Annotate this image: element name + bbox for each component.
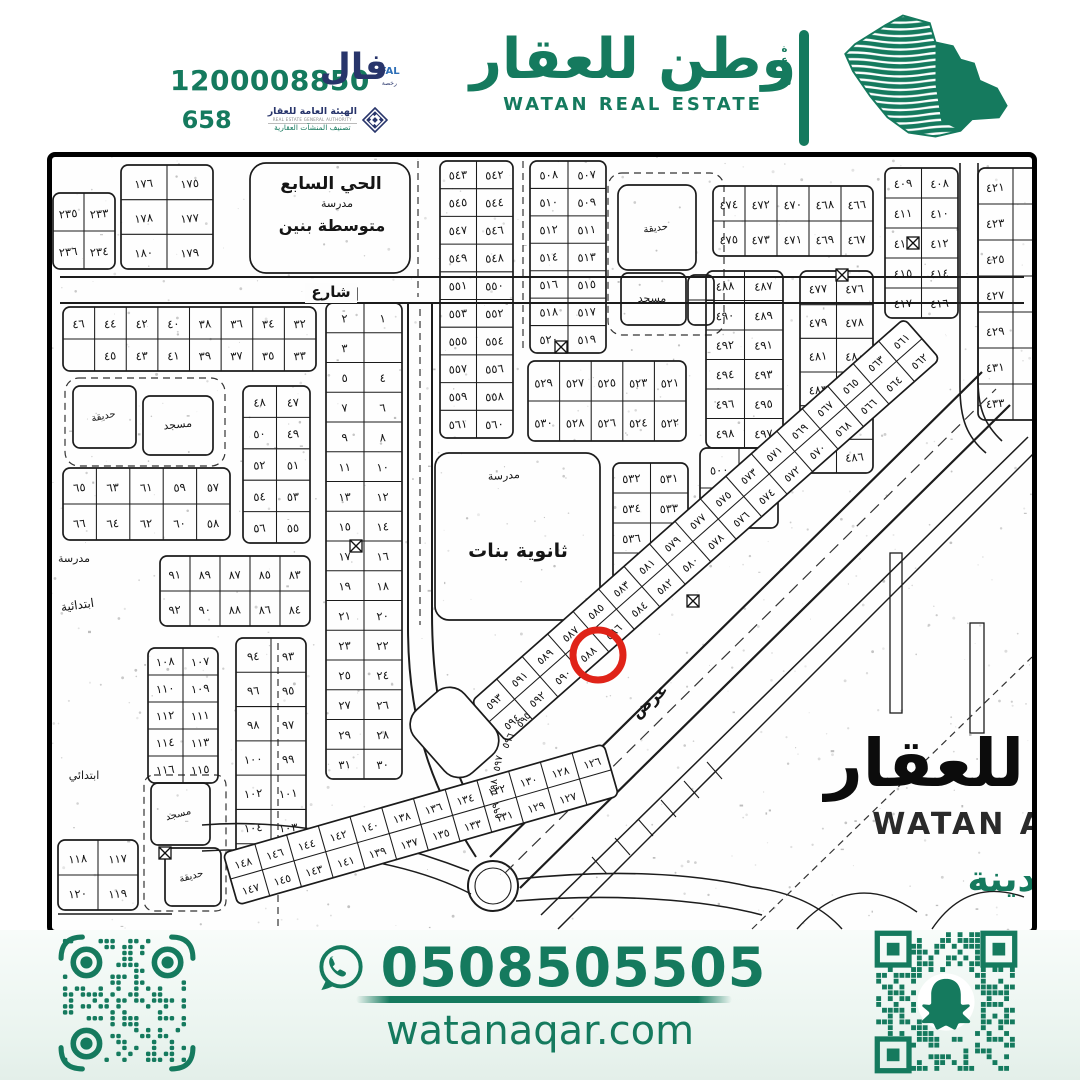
- svg-text:٤٧٦: ٤٧٦: [845, 281, 865, 297]
- svg-text:٥٣: ٥٣: [286, 489, 300, 504]
- svg-text:حديقة: حديقة: [178, 868, 205, 885]
- svg-text:٥٢٨: ٥٢٨: [565, 415, 585, 431]
- svg-text:٤٦٩: ٤٦٩: [815, 232, 835, 248]
- brand-name-arabic: وطن للعقار: [468, 22, 798, 98]
- svg-text:٥٢١: ٥٢١: [660, 375, 680, 391]
- svg-text:٩٨: ٩٨: [246, 717, 260, 732]
- svg-text:٥٠٨: ٥٠٨: [539, 167, 559, 183]
- brand-side-text: شمعة: [779, 44, 790, 144]
- svg-text:٤١٠: ٤١٠: [930, 206, 950, 222]
- svg-text:٩٣: ٩٣: [281, 649, 295, 664]
- svg-text:١٠١: ١٠١: [278, 786, 298, 802]
- svg-text:٤٨٩: ٤٨٩: [754, 308, 774, 324]
- svg-text:٨٥: ٨٥: [258, 567, 272, 582]
- svg-text:الحي السابع: الحي السابع: [280, 174, 381, 194]
- svg-text:متوسطة بنين: متوسطة بنين: [279, 216, 386, 235]
- svg-text:٣٠: ٣٠: [376, 757, 390, 772]
- svg-text:٥٠٩: ٥٠٩: [577, 194, 597, 210]
- svg-text:٥٠٧: ٥٠٧: [577, 167, 597, 183]
- svg-text:٤٣٣: ٤٣٣: [985, 396, 1005, 412]
- secondary-license-number: 658: [182, 106, 232, 134]
- svg-text:٥٩: ٥٩: [173, 480, 187, 495]
- svg-text:٨٣: ٨٣: [288, 567, 302, 582]
- svg-text:٣١: ٣١: [338, 757, 352, 772]
- svg-text:٥٠: ٥٠: [253, 426, 267, 441]
- svg-text:٥٥٦: ٥٥٦: [485, 361, 505, 377]
- svg-text:٤٧١: ٤٧١: [783, 232, 803, 248]
- saudi-map-icon: [826, 4, 1022, 148]
- svg-text:٤٩٥: ٤٩٥: [754, 396, 774, 412]
- svg-text:٥١٢: ٥١٢: [539, 222, 559, 238]
- svg-text:٤٩٦: ٤٩٦: [715, 396, 735, 412]
- svg-text:٥١٧: ٥١٧: [577, 304, 597, 320]
- svg-text:ابتدائي: ابتدائي: [69, 769, 100, 782]
- svg-text:٤٦: ٤٦: [72, 316, 86, 331]
- svg-text:٣: ٣: [341, 341, 348, 355]
- svg-text:٥٢٩: ٥٢٩: [534, 375, 554, 391]
- svg-text:٥٢٣: ٥٢٣: [628, 375, 648, 391]
- svg-text:٢٣٣: ٢٣٣: [89, 206, 109, 222]
- svg-text:٥٤٨: ٥٤٨: [485, 250, 505, 266]
- svg-text:٥١٠: ٥١٠: [539, 194, 559, 210]
- svg-text:١٥: ١٥: [338, 519, 352, 534]
- svg-text:٤٩: ٤٩: [286, 426, 300, 441]
- svg-text:١١١: ١١١: [190, 708, 210, 724]
- svg-text:٣٦: ٣٦: [230, 316, 244, 331]
- svg-text:٥١٥: ٥١٥: [577, 277, 597, 293]
- svg-text:٥٥٢: ٥٥٢: [485, 306, 505, 322]
- svg-text:٤٩٠: ٤٩٠: [715, 308, 735, 324]
- svg-text:٢: ٢: [341, 311, 348, 325]
- svg-text:٩٩: ٩٩: [281, 752, 295, 767]
- qr-code-snapchat: [872, 928, 1020, 1076]
- svg-text:٦٦: ٦٦: [73, 516, 87, 531]
- fal-logo-sub: رخصة: [382, 80, 397, 87]
- svg-text:٤٨١: ٤٨١: [808, 348, 828, 364]
- svg-text:٥٢٤: ٥٢٤: [628, 415, 648, 431]
- rega-diamond-icon: [362, 107, 388, 133]
- map-watermark-english: WATAN A: [872, 807, 1037, 842]
- svg-text:٤٣١: ٤٣١: [985, 360, 1005, 376]
- svg-text:٥: ٥: [341, 371, 348, 385]
- svg-text:٥٢٥: ٥٢٥: [597, 375, 617, 391]
- svg-text:٢٧: ٢٧: [338, 698, 352, 713]
- diagonal-plot-strips: ٥٩٣٥٩١٥٨٩٥٨٧٥٨٥٥٨٣٥٨١٥٧٩٥٧٧٥٧٥٥٧٣٥٧١٥٦٩٥…: [223, 319, 940, 905]
- map-watermark-city: دينة: [967, 859, 1036, 900]
- svg-text:٢٢: ٢٢: [376, 638, 390, 653]
- svg-text:١٠٠: ١٠٠: [243, 751, 263, 767]
- svg-text:٢١: ٢١: [338, 608, 352, 623]
- svg-text:٥٤٤: ٥٤٤: [485, 195, 505, 211]
- svg-text:٥٣٤: ٥٣٤: [622, 501, 642, 517]
- svg-text:٥٣٦: ٥٣٦: [622, 531, 642, 547]
- svg-text:١٩: ١٩: [338, 579, 352, 594]
- svg-text:١٠٩: ١٠٩: [190, 681, 210, 697]
- svg-text:٥١٤: ٥١٤: [539, 249, 559, 265]
- svg-text:٨٨: ٨٨: [228, 602, 242, 617]
- svg-text:مدرسة: مدرسة: [321, 197, 353, 210]
- svg-text:٤١٢: ٤١٢: [930, 236, 950, 252]
- svg-text:٤٣: ٤٣: [135, 348, 149, 363]
- svg-text:١١٦: ١١٦: [155, 762, 175, 778]
- svg-text:مدرسة: مدرسة: [58, 552, 90, 565]
- svg-text:٥٥٨: ٥٥٨: [485, 389, 505, 405]
- footer-divider: [356, 996, 732, 1003]
- svg-text:٤٢٥: ٤٢٥: [985, 252, 1005, 268]
- svg-text:مسجد: مسجد: [638, 292, 667, 305]
- svg-text:٥١١: ٥١١: [577, 222, 597, 238]
- svg-text:٤٠: ٤٠: [167, 316, 181, 331]
- svg-text:٤٦٨: ٤٦٨: [815, 197, 835, 213]
- svg-text:١٢٠: ١٢٠: [68, 886, 88, 902]
- svg-text:٥٥١: ٥٥١: [448, 278, 468, 294]
- svg-text:٥٦٠: ٥٦٠: [485, 417, 505, 433]
- svg-text:١١٩: ١١٩: [108, 886, 128, 902]
- flyer-page: 1200008850 FAL فال رخصة 658 الهيئة العام…: [0, 0, 1080, 1080]
- svg-text:٥٨: ٥٨: [206, 516, 220, 531]
- svg-text:٤١١: ٤١١: [893, 206, 913, 222]
- svg-text:حديقة: حديقة: [643, 221, 669, 235]
- svg-text:٢٦: ٢٦: [376, 698, 390, 713]
- svg-text:٣٣: ٣٣: [293, 348, 307, 363]
- svg-text:٥٢: ٥٢: [253, 458, 267, 473]
- svg-text:٨٩: ٨٩: [198, 567, 212, 582]
- svg-text:حديقة: حديقة: [90, 409, 116, 425]
- svg-text:٤٧٤: ٤٧٤: [719, 197, 739, 213]
- brand-name-english: WATAN REAL ESTATE: [468, 94, 798, 115]
- phone-number: 0508505505: [381, 936, 767, 999]
- svg-text:٤٢٩: ٤٢٩: [985, 324, 1005, 340]
- svg-text:١٤: ١٤: [376, 519, 390, 534]
- svg-text:٤٨٦: ٤٨٦: [845, 449, 865, 465]
- svg-text:٥٤٣: ٥٤٣: [448, 167, 468, 183]
- map-watermark-arabic: للعقار: [825, 725, 1024, 802]
- svg-text:٥٥٣: ٥٥٣: [448, 306, 468, 322]
- svg-text:٥٥٤: ٥٥٤: [485, 333, 505, 349]
- svg-text:١١٨: ١١٨: [68, 851, 88, 867]
- svg-text:٥٤٦: ٥٤٦: [485, 223, 505, 239]
- svg-text:ابتدائية: ابتدائية: [60, 596, 95, 615]
- svg-text:٥٩٨: ٥٩٨: [489, 778, 500, 795]
- svg-text:٢٣: ٢٣: [338, 638, 352, 653]
- svg-text:١٦: ١٦: [376, 549, 390, 564]
- svg-text:١١٢: ١١٢: [155, 708, 175, 724]
- svg-text:٤٨٧: ٤٨٧: [754, 278, 774, 294]
- svg-text:٤١٤: ٤١٤: [930, 266, 950, 282]
- svg-text:٤٢١: ٤٢١: [985, 180, 1005, 196]
- svg-text:٤٧٩: ٤٧٩: [808, 315, 828, 331]
- svg-text:٥٣٢: ٥٣٢: [622, 471, 642, 487]
- svg-text:١٨٠: ١٨٠: [134, 245, 154, 261]
- svg-text:٥٣٠: ٥٣٠: [534, 415, 554, 431]
- svg-text:٤٢: ٤٢: [135, 316, 149, 331]
- svg-text:٥٤٥: ٥٤٥: [448, 195, 468, 211]
- svg-text:٤١٥: ٤١٥: [893, 266, 913, 282]
- svg-text:٢٨: ٢٨: [376, 727, 390, 742]
- svg-text:٩٠: ٩٠: [198, 602, 212, 617]
- svg-text:٤٧٠: ٤٧٠: [783, 197, 803, 213]
- svg-text:٤٩٨: ٤٩٨: [715, 426, 735, 442]
- svg-text:٤٩٢: ٤٩٢: [715, 337, 735, 353]
- svg-text:٣٩: ٣٩: [198, 348, 212, 363]
- svg-text:١٧٦: ١٧٦: [134, 176, 154, 192]
- svg-text:٤٩٣: ٤٩٣: [754, 367, 774, 383]
- svg-text:١١٠: ١١٠: [155, 681, 175, 697]
- svg-text:٥٥٠: ٥٥٠: [485, 278, 505, 294]
- svg-text:٥٦: ٥٦: [253, 521, 267, 536]
- svg-text:٥١٨: ٥١٨: [539, 304, 559, 320]
- svg-text:٣٤: ٣٤: [261, 316, 275, 331]
- svg-text:٤٢٧: ٤٢٧: [985, 288, 1005, 304]
- svg-text:عرض: عرض: [627, 680, 671, 722]
- svg-text:٨٦: ٨٦: [258, 602, 272, 617]
- svg-text:٨٤: ٨٤: [288, 602, 302, 617]
- svg-text:٤١٧: ٤١٧: [893, 296, 913, 312]
- svg-text:٤٧: ٤٧: [286, 395, 300, 410]
- svg-text:١٠٢: ١٠٢: [243, 786, 263, 802]
- svg-text:٤٦٦: ٤٦٦: [847, 197, 867, 213]
- svg-text:مدرسة: مدرسة: [487, 468, 520, 483]
- svg-text:٩٧: ٩٧: [281, 717, 295, 732]
- svg-text:١١٥: ١١٥: [190, 762, 210, 778]
- whatsapp-icon: [314, 941, 368, 995]
- svg-text:٩١: ٩١: [168, 567, 182, 582]
- svg-text:٩٢: ٩٢: [168, 602, 182, 617]
- svg-text:٥١٦: ٥١٦: [539, 277, 559, 293]
- svg-text:١٨: ١٨: [376, 579, 390, 594]
- svg-text:٥٧: ٥٧: [206, 480, 220, 495]
- svg-text:٢٣٦: ٢٣٦: [58, 244, 78, 260]
- svg-text:٤٠٨: ٤٠٨: [930, 176, 950, 192]
- svg-text:٥٥: ٥٥: [286, 521, 300, 536]
- svg-text:١٧٥: ١٧٥: [180, 176, 200, 192]
- svg-text:٥٩٧: ٥٩٧: [491, 754, 505, 773]
- svg-text:٤١٦: ٤١٦: [930, 296, 950, 312]
- svg-text:١٢: ١٢: [376, 489, 390, 504]
- svg-text:مسجد: مسجد: [163, 417, 193, 433]
- svg-text:٥٣١: ٥٣١: [659, 471, 679, 487]
- svg-text:١٠٤: ١٠٤: [243, 820, 263, 836]
- svg-text:٥٥٧: ٥٥٧: [448, 361, 468, 377]
- svg-text:٨: ٨: [379, 430, 386, 444]
- svg-text:٥٣٣: ٥٣٣: [659, 501, 679, 517]
- svg-text:٤٢٣: ٤٢٣: [985, 216, 1005, 232]
- rega-classification: تصنيف المنشآت العقارية: [268, 124, 357, 133]
- svg-text:٤٠٩: ٤٠٩: [893, 176, 913, 192]
- license-block: 1200008850 FAL فال رخصة 658 الهيئة العام…: [170, 58, 388, 134]
- svg-text:٤٧٧: ٤٧٧: [808, 281, 828, 297]
- svg-text:٤٩١: ٤٩١: [754, 337, 774, 353]
- svg-text:مسجد: مسجد: [164, 806, 192, 823]
- svg-text:٦٢: ٦٢: [139, 516, 153, 531]
- svg-text:٤٤: ٤٤: [103, 316, 117, 331]
- fal-logo-ar: فال: [320, 50, 388, 86]
- svg-text:شارع: شارع: [311, 283, 350, 301]
- svg-text:٥٥٩: ٥٥٩: [448, 389, 468, 405]
- svg-text:٥٢٦: ٥٢٦: [597, 415, 617, 431]
- svg-text:٦٤: ٦٤: [106, 516, 120, 531]
- svg-text:٦٥: ٦٥: [73, 480, 87, 495]
- svg-text:٥٢٢: ٥٢٢: [660, 415, 680, 431]
- svg-text:٥٤٢: ٥٤٢: [485, 167, 505, 183]
- svg-text:٤٧٥: ٤٧٥: [719, 232, 739, 248]
- svg-text:٢٩: ٢٩: [338, 727, 352, 742]
- svg-text:ثانوية بنات: ثانوية بنات: [468, 540, 568, 562]
- svg-text:٥١٣: ٥١٣: [577, 249, 597, 265]
- svg-text:٥٤: ٥٤: [253, 489, 267, 504]
- svg-text:٦٠: ٦٠: [173, 516, 187, 531]
- svg-text:٢٠: ٢٠: [376, 608, 390, 623]
- svg-text:٤٧٨: ٤٧٨: [845, 315, 865, 331]
- svg-text:١٧٧: ١٧٧: [180, 210, 200, 226]
- svg-text:٧: ٧: [341, 400, 348, 414]
- svg-text:٥٥٥: ٥٥٥: [448, 333, 468, 349]
- svg-text:٢٤: ٢٤: [376, 668, 390, 683]
- fal-logo: FAL فال رخصة: [380, 58, 388, 102]
- svg-text:٢٣٤: ٢٣٤: [89, 244, 109, 260]
- svg-text:٩٦: ٩٦: [246, 683, 260, 698]
- svg-text:١٧٩: ١٧٩: [180, 245, 200, 261]
- svg-text:٩٤: ٩٤: [246, 649, 260, 664]
- svg-text:٨٧: ٨٧: [228, 567, 242, 582]
- svg-text:١١: ١١: [338, 460, 352, 475]
- svg-text:٤: ٤: [379, 371, 386, 385]
- svg-text:٤٧٢: ٤٧٢: [751, 197, 771, 213]
- brand-logo: وطن للعقار WATAN REAL ESTATE: [468, 22, 798, 115]
- svg-text:٢٥: ٢٥: [338, 668, 352, 683]
- svg-text:٤٦٧: ٤٦٧: [847, 232, 867, 248]
- svg-text:١١٧: ١١٧: [108, 851, 128, 867]
- svg-text:٩٥: ٩٥: [281, 683, 295, 698]
- svg-text:٤٥: ٤٥: [103, 348, 117, 363]
- svg-text:١٠٧: ١٠٧: [190, 654, 210, 670]
- svg-text:٥٦١: ٥٦١: [448, 417, 468, 433]
- svg-text:٤١: ٤١: [167, 348, 181, 363]
- svg-text:٢٣٥: ٢٣٥: [58, 206, 78, 222]
- svg-text:٩: ٩: [341, 430, 348, 444]
- svg-text:١٠٨: ١٠٨: [155, 654, 175, 670]
- svg-text:١٠: ١٠: [376, 460, 390, 475]
- svg-text:٤٨٨: ٤٨٨: [715, 278, 735, 294]
- svg-text:١١٣: ١١٣: [190, 735, 210, 751]
- svg-text:٥١٩: ٥١٩: [577, 332, 597, 348]
- svg-text:١٧٨: ١٧٨: [134, 210, 154, 226]
- svg-text:٤٧٣: ٤٧٣: [751, 232, 771, 248]
- svg-text:٦٣: ٦٣: [106, 480, 120, 495]
- rega-logo: الهيئة العامة للعقار REAL ESTATE GENERAL…: [268, 107, 388, 133]
- svg-text:٤٩٤: ٤٩٤: [715, 367, 735, 383]
- svg-text:٥٢٧: ٥٢٧: [565, 375, 585, 391]
- svg-text:٣٧: ٣٧: [230, 348, 244, 363]
- plot-map: ٢٣٥٢٣٣٢٣٦٢٣٤١٧٦١٧٥١٧٨١٧٧١٨٠١٧٩٤٦٤٤٤٢٤٠٣٨…: [47, 152, 1037, 935]
- svg-text:١١٤: ١١٤: [155, 735, 175, 751]
- svg-text:٥٤٧: ٥٤٧: [448, 223, 468, 239]
- svg-text:١٣: ١٣: [338, 489, 352, 504]
- svg-text:٥٤٩: ٥٤٩: [448, 250, 468, 266]
- svg-text:٥١: ٥١: [286, 458, 300, 473]
- svg-text:٦١: ٦١: [139, 480, 153, 495]
- brand-divider-bar: [799, 30, 809, 146]
- svg-text:٤٨: ٤٨: [253, 395, 267, 410]
- svg-text:٣٨: ٣٨: [198, 316, 212, 331]
- svg-text:١: ١: [379, 311, 386, 325]
- svg-text:٦: ٦: [379, 400, 386, 414]
- svg-text:٣٢: ٣٢: [293, 316, 307, 331]
- svg-text:٣٥: ٣٥: [261, 348, 275, 363]
